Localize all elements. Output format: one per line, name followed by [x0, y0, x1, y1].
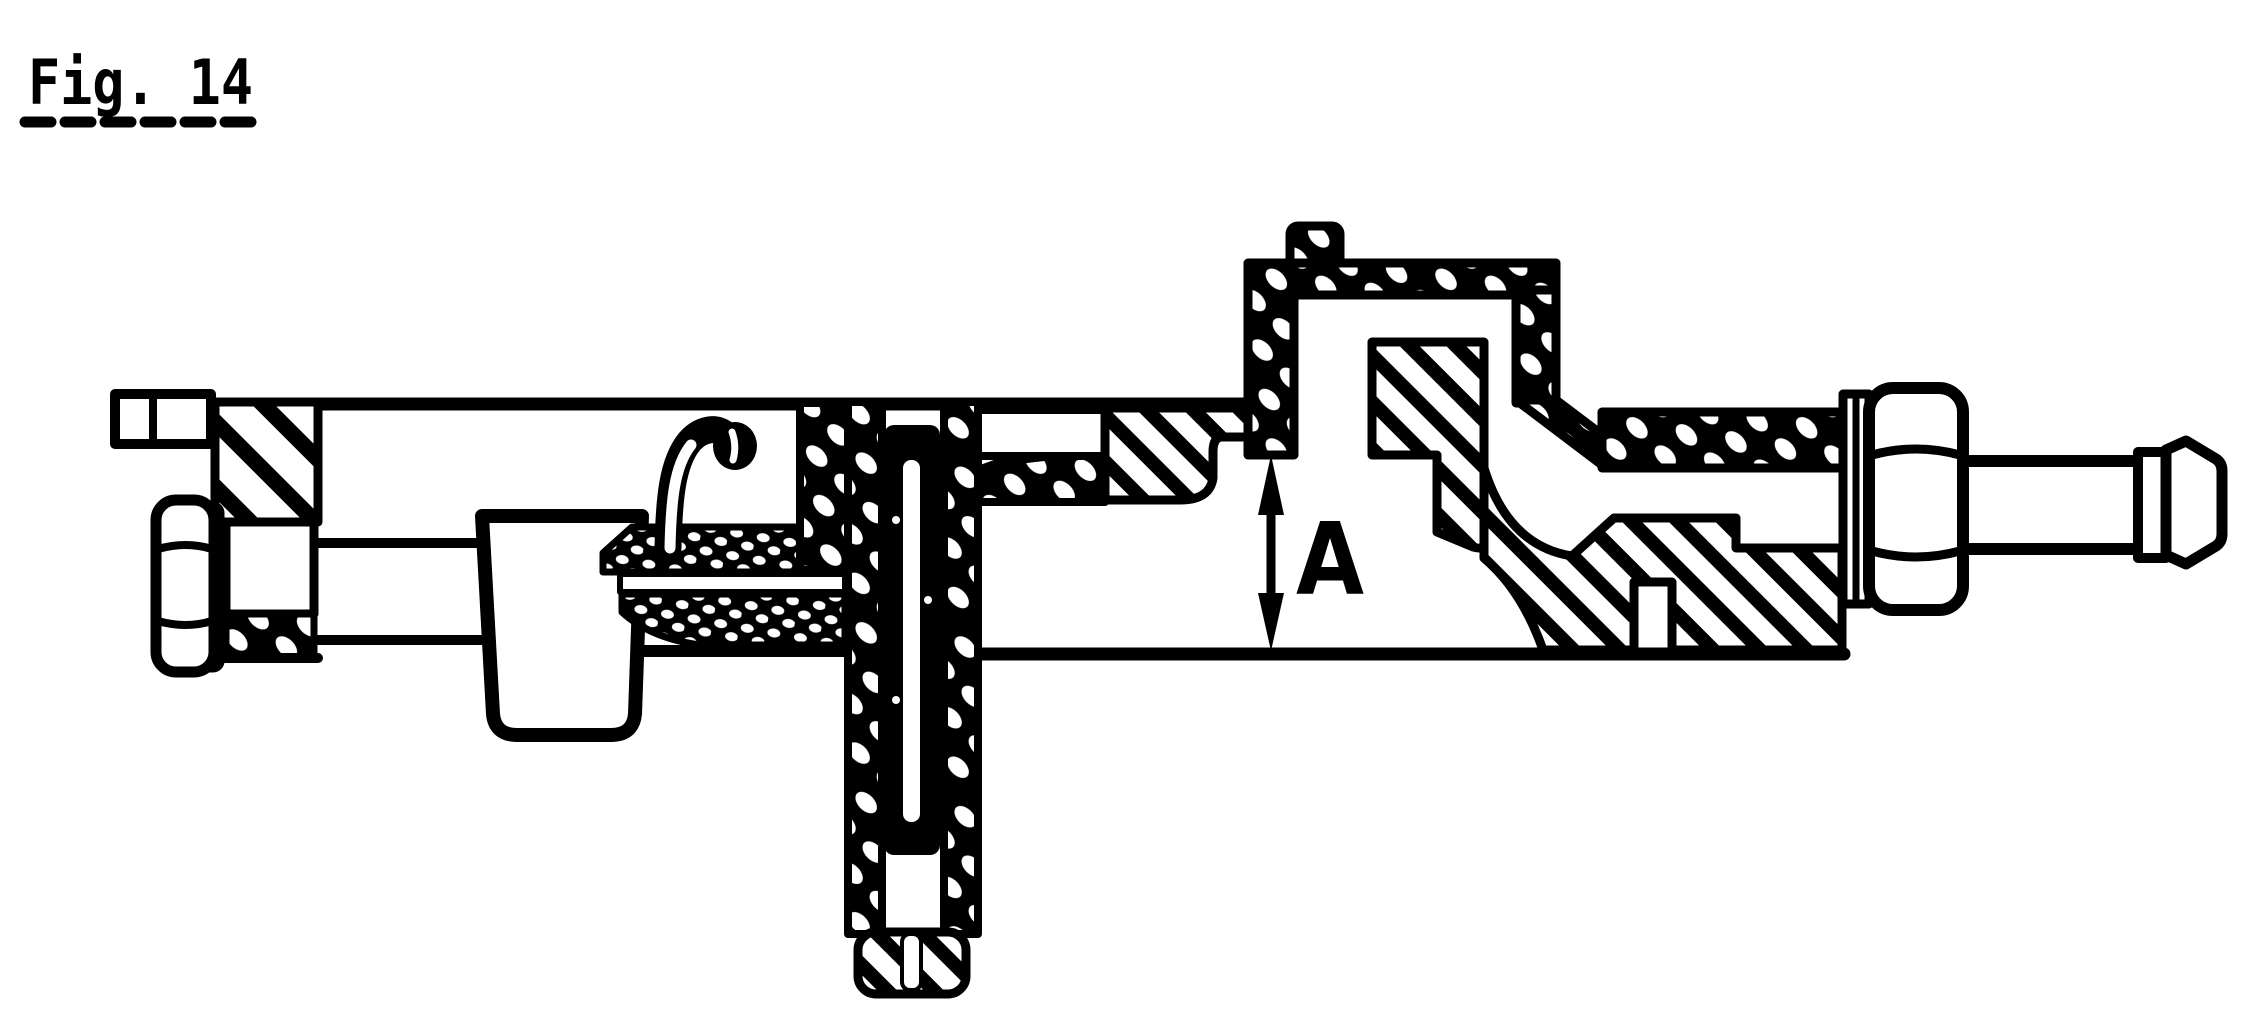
- left-hatched-flange: [215, 402, 318, 522]
- body-wall-section: [975, 408, 1248, 502]
- hex-bolt-head: [156, 500, 214, 672]
- elbow-tube-head-slit: [732, 432, 735, 460]
- tube-speck-2: [924, 596, 932, 604]
- left-spacer-block: [226, 522, 314, 614]
- hose-barb-tip: [2166, 441, 2222, 564]
- left-mounting-tab: [115, 394, 211, 444]
- patent-figure-page: A Fig. 14: [0, 0, 2250, 1020]
- stem-right-wall: [944, 402, 978, 934]
- figure-drawing: A Fig. 14: [0, 0, 2250, 1020]
- outlet-shaft: [1963, 461, 2140, 549]
- left-seal-ring: [226, 614, 314, 658]
- body-gallery-slot: [975, 410, 1105, 456]
- hex-bolt-facet-lower: [158, 621, 212, 625]
- dimension-label-a: A: [1296, 501, 1364, 618]
- figure-caption: Fig. 14: [25, 46, 253, 122]
- housing-left-wall: [1248, 263, 1294, 455]
- figure-label: Fig. 14: [28, 46, 253, 119]
- tube-speck-3: [892, 696, 900, 704]
- outlet-hex-nut: [1869, 388, 1963, 610]
- hex-bolt-facet-upper: [158, 545, 212, 549]
- stem-left-wall: [848, 402, 882, 934]
- housing-right-wall: [1516, 290, 1556, 403]
- tube-speck-1: [892, 516, 900, 524]
- packing-shaft-band: [620, 574, 845, 592]
- stem-tip-slit: [902, 934, 921, 990]
- stem-inner-tube-bore: [903, 460, 920, 822]
- right-top-band: [1602, 412, 1843, 468]
